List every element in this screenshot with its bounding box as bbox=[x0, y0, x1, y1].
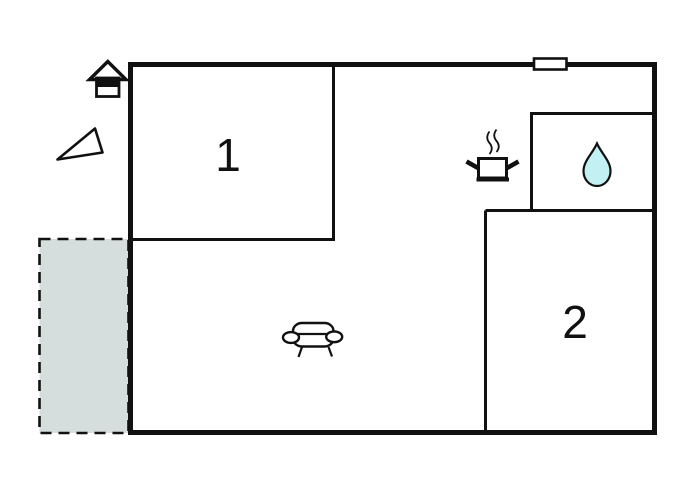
sofa-armrest-right bbox=[326, 331, 342, 342]
sofa-armrest-left bbox=[283, 332, 299, 343]
walls bbox=[131, 65, 655, 433]
north-arrow-icon bbox=[58, 129, 103, 160]
pot-handle-left bbox=[467, 162, 479, 169]
outer-wall bbox=[131, 65, 655, 433]
pot-body bbox=[479, 159, 507, 179]
sofa-leg-right bbox=[329, 347, 333, 357]
kitchen-pot-icon bbox=[467, 130, 519, 180]
floor-plan-canvas: 1 2 bbox=[0, 0, 700, 500]
house-band bbox=[96, 77, 121, 87]
water-drop-icon bbox=[584, 144, 611, 187]
floor-plan-page: 1 2 bbox=[0, 0, 700, 500]
sofa-leg-left bbox=[299, 347, 303, 357]
window-marker bbox=[534, 59, 567, 70]
sofa-icon bbox=[283, 323, 342, 357]
room-2-label: 2 bbox=[562, 296, 588, 348]
house-icon bbox=[90, 62, 127, 97]
steam-line bbox=[487, 132, 492, 155]
steam-line bbox=[494, 130, 499, 153]
pot-handle-right bbox=[507, 162, 519, 169]
terrace-area bbox=[40, 239, 129, 433]
room-1-label: 1 bbox=[215, 129, 241, 181]
